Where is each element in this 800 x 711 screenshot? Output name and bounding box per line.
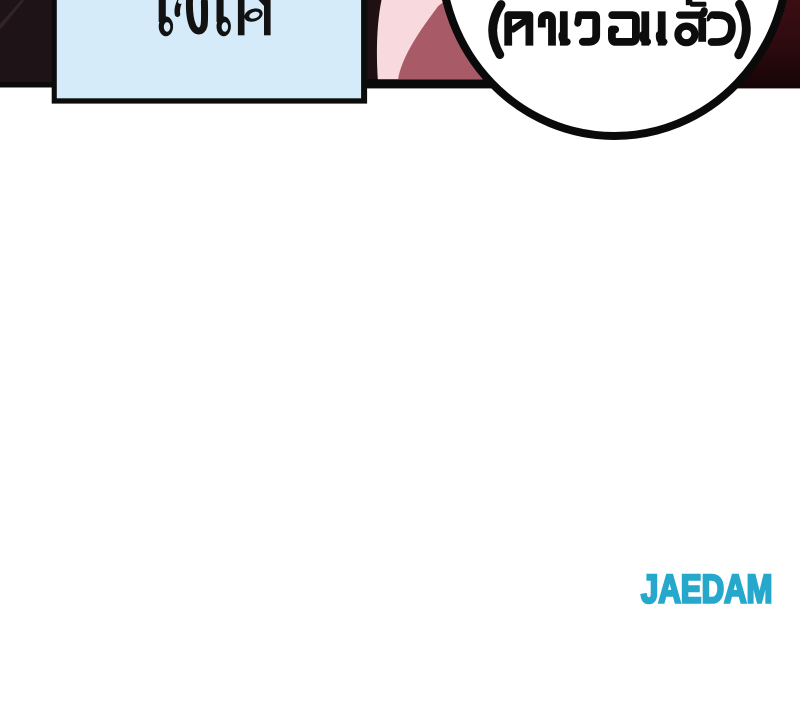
svg-text:JAEDAM: JAEDAM — [641, 568, 773, 612]
